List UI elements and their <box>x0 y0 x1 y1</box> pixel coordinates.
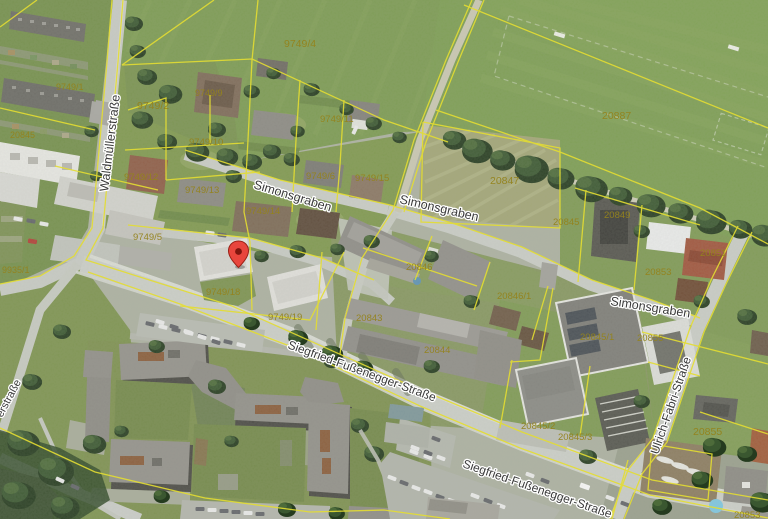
svg-text:9749/4: 9749/4 <box>284 38 316 50</box>
svg-text:20855: 20855 <box>693 426 722 438</box>
svg-text:9749/6: 9749/6 <box>306 171 335 182</box>
svg-text:20887: 20887 <box>602 110 631 122</box>
svg-text:9935/1: 9935/1 <box>2 265 30 275</box>
svg-text:9749/15: 9749/15 <box>355 173 389 184</box>
svg-text:20846: 20846 <box>406 262 432 273</box>
svg-text:9749/2: 9749/2 <box>137 100 169 112</box>
svg-text:20846/1: 20846/1 <box>497 291 531 302</box>
svg-text:9749/14: 9749/14 <box>246 206 280 217</box>
svg-text:9749/13: 9749/13 <box>185 185 219 196</box>
svg-text:9749/1: 9749/1 <box>56 82 84 92</box>
svg-text:20855: 20855 <box>637 333 663 344</box>
svg-text:20844: 20844 <box>424 345 450 356</box>
svg-text:20843: 20843 <box>356 313 382 324</box>
svg-text:9749/12: 9749/12 <box>124 172 158 183</box>
svg-text:20845/3: 20845/3 <box>558 432 592 443</box>
svg-text:20851: 20851 <box>700 248 726 259</box>
svg-text:20845/1: 20845/1 <box>580 332 614 343</box>
svg-text:9749/19: 9749/19 <box>268 312 302 323</box>
svg-text:20845: 20845 <box>10 130 35 140</box>
svg-text:20849: 20849 <box>604 210 630 221</box>
svg-text:20845: 20845 <box>553 217 579 228</box>
svg-text:9749/18: 9749/18 <box>206 287 240 298</box>
svg-text:9749/9: 9749/9 <box>195 88 223 98</box>
svg-text:20853: 20853 <box>645 267 671 278</box>
svg-text:9749/5: 9749/5 <box>133 232 162 243</box>
svg-text:9749/10: 9749/10 <box>189 137 223 148</box>
svg-text:20847: 20847 <box>490 175 519 187</box>
svg-text:20853: 20853 <box>734 510 760 519</box>
svg-text:9749/11: 9749/11 <box>320 114 354 125</box>
svg-text:20845/2: 20845/2 <box>521 421 555 432</box>
